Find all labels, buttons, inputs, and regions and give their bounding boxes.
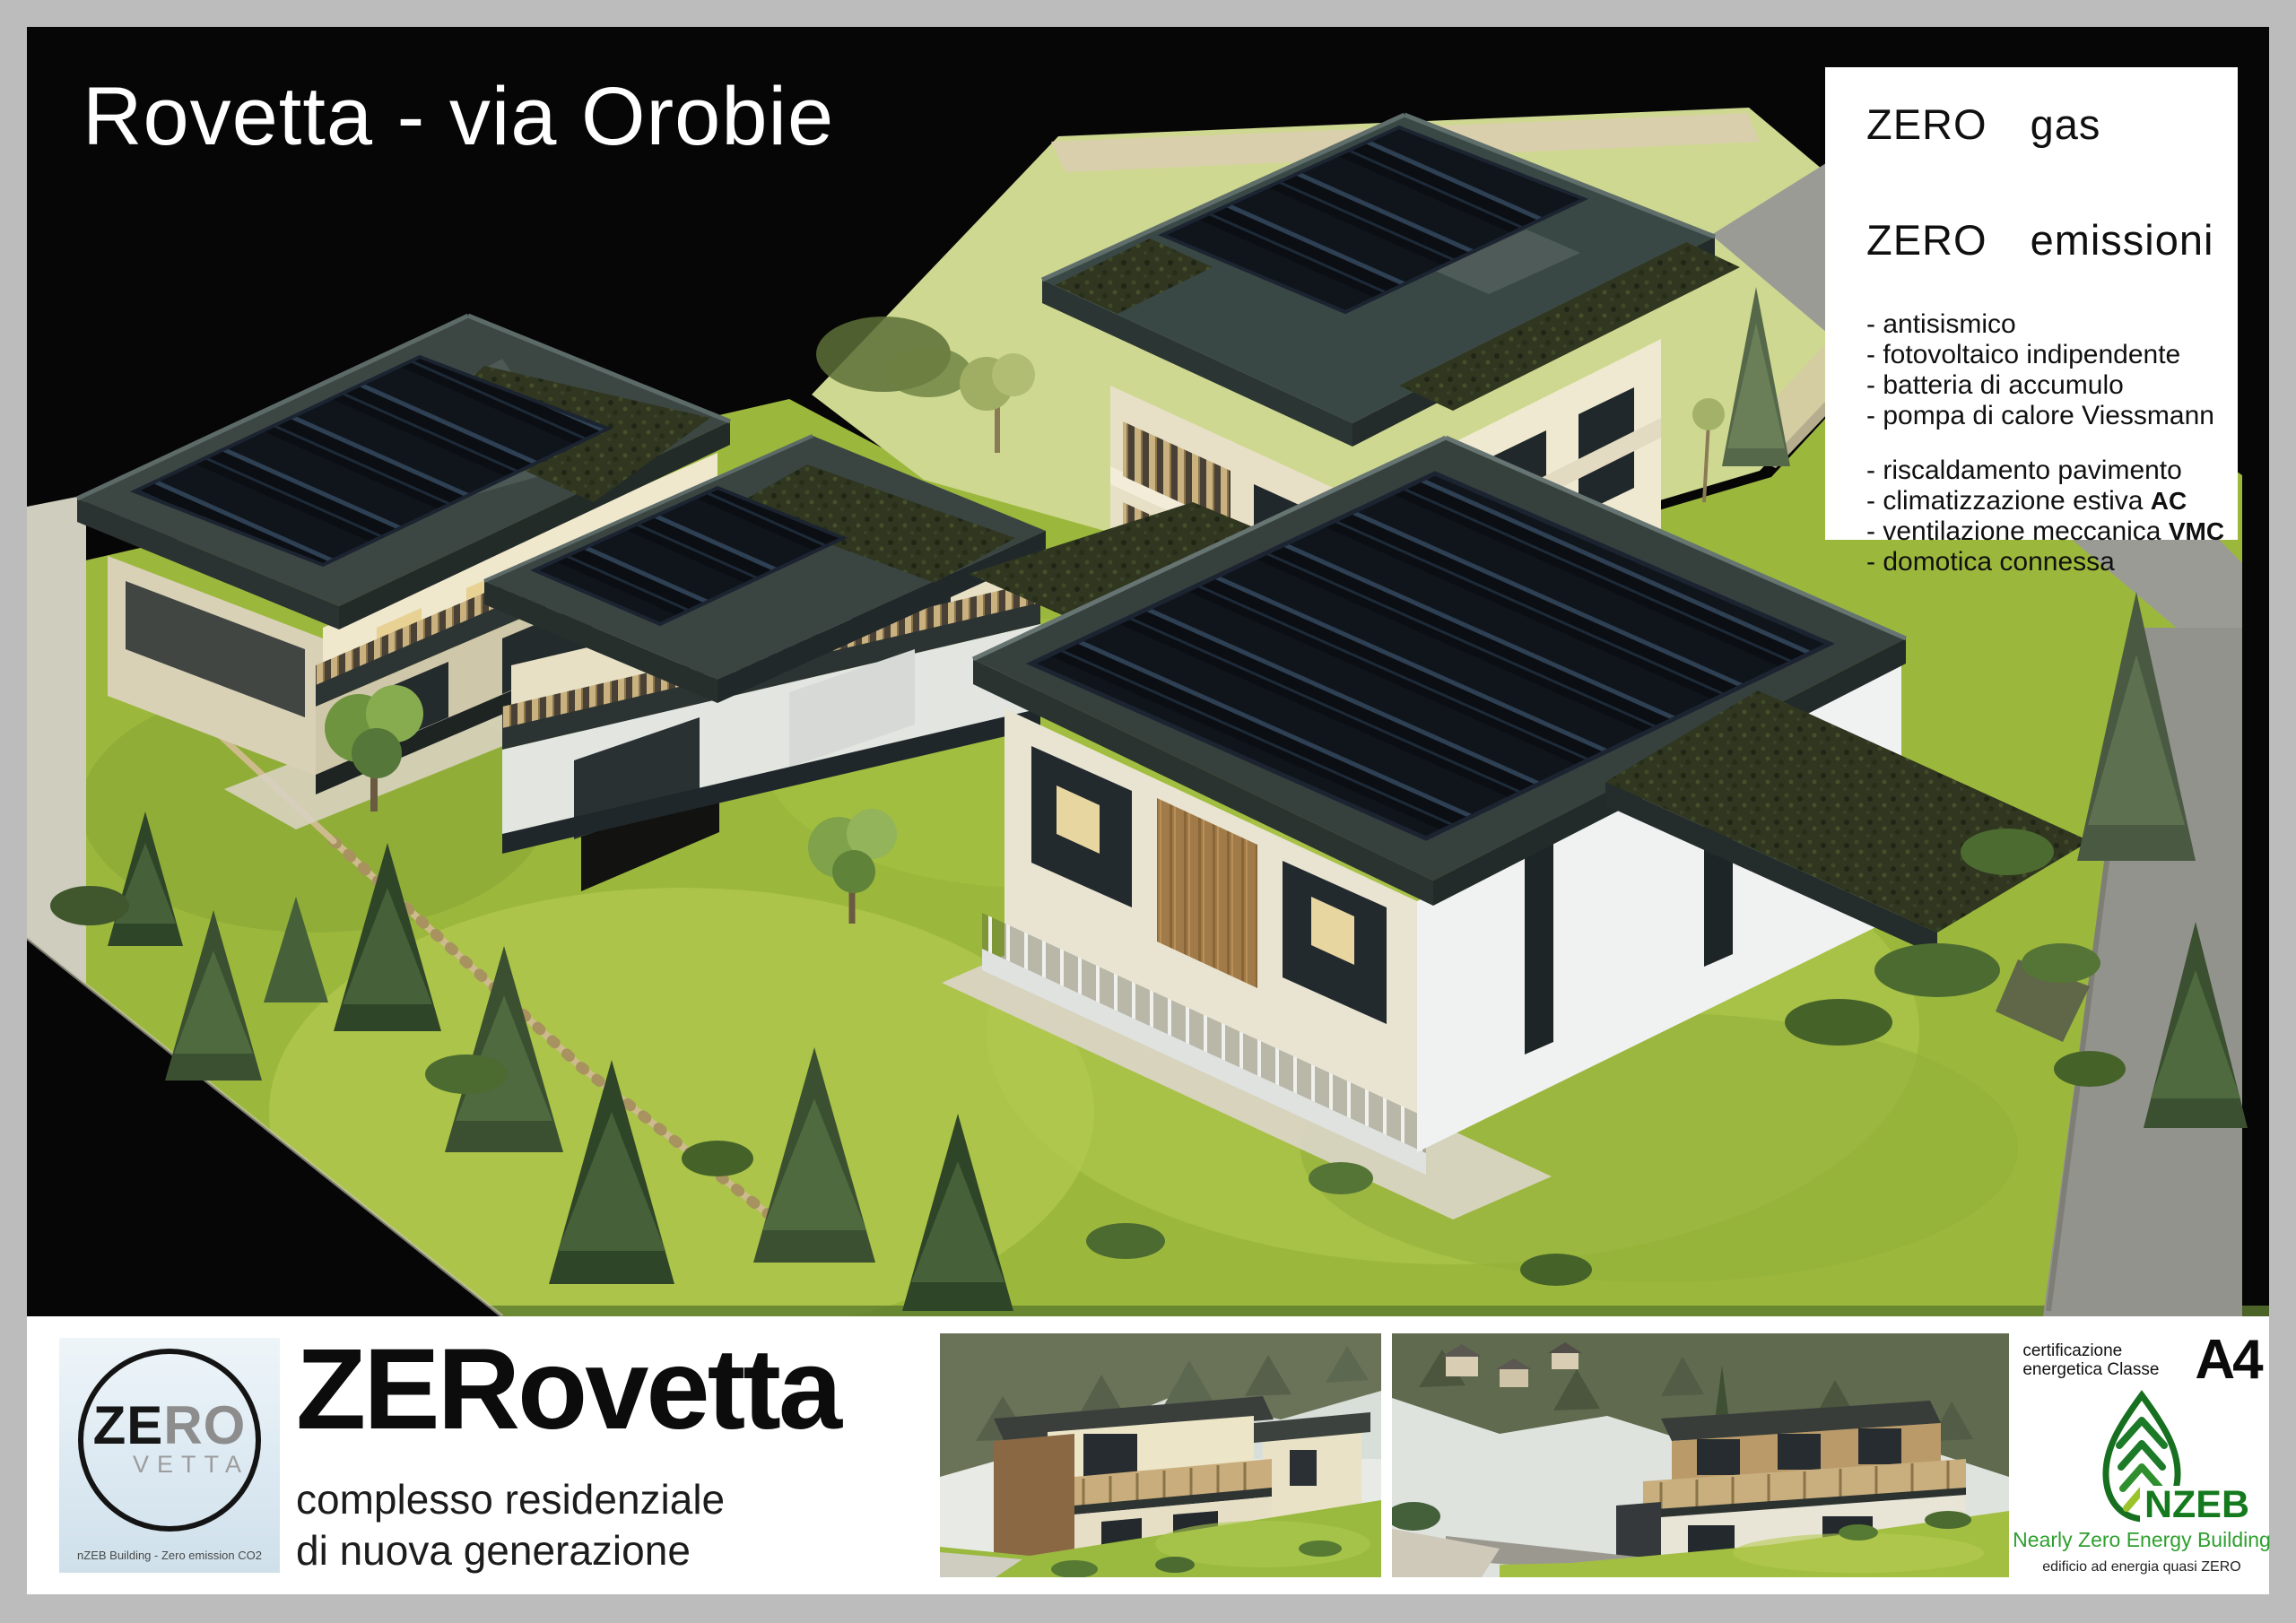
energy-class-row: certificazione energetica Classe A4 — [2011, 1332, 2273, 1388]
bush — [1961, 829, 2054, 875]
poster-page: Rovetta - via Orobie ZEROgas ZEROemissio… — [0, 0, 2296, 1623]
bush — [1309, 1162, 1373, 1194]
features-box: ZEROgas ZEROemissioni - antisismico - fo… — [1825, 67, 2238, 540]
energy-class-value: A4 — [2195, 1332, 2260, 1388]
nzeb-logo: NZEB — [2070, 1390, 2213, 1526]
feature-item: - ventilazione meccanica VMC — [1866, 516, 2229, 547]
brand-block: ZERovetta complesso residenziale di nuov… — [296, 1332, 839, 1576]
feature-item: - batteria di accumulo — [1866, 370, 2229, 401]
photo2-illustration — [1392, 1333, 2009, 1577]
bush — [682, 1141, 753, 1176]
nzeb-caption: edificio ad energia quasi ZERO — [2011, 1559, 2273, 1575]
bush — [1086, 1223, 1165, 1259]
feature-item: - riscaldamento pavimento — [1866, 456, 2229, 486]
bush — [425, 1055, 508, 1094]
photo1-illustration — [940, 1333, 1381, 1577]
page-title: Rovetta - via Orobie — [83, 70, 834, 164]
energy-class-label: certificazione energetica Classe — [2022, 1341, 2186, 1379]
zerovetta-logo: ZERO VETTA nZEB Building - Zero emission… — [59, 1338, 280, 1573]
features-list: - antisismico - fotovoltaico indipendent… — [1866, 309, 2229, 577]
bush — [1520, 1254, 1592, 1286]
nzeb-subtitle: Nearly Zero Energy Building — [2011, 1528, 2273, 1552]
logo-circle-icon: ZERO VETTA — [78, 1349, 261, 1532]
headline-zero-emissioni: ZEROemissioni — [1866, 215, 2229, 265]
headline-zero-gas: ZEROgas — [1866, 100, 2229, 149]
logo-wordmark: ZERO — [83, 1399, 256, 1453]
photo-building-exterior-2 — [1392, 1333, 2009, 1577]
photo-building-exterior-1 — [940, 1333, 1381, 1577]
feature-item: - climatizzazione estiva AC — [1866, 486, 2229, 516]
feature-item: - pompa di calore Viessmann — [1866, 401, 2229, 431]
brand-name: ZERovetta — [296, 1332, 839, 1447]
feature-item: - fotovoltaico indipendente — [1866, 340, 2229, 370]
feature-item: - domotica connessa — [1866, 547, 2229, 577]
nzeb-wordmark: NZEB — [2140, 1486, 2249, 1524]
bush — [50, 886, 129, 925]
bottom-bar: ZERO VETTA nZEB Building - Zero emission… — [27, 1316, 2269, 1594]
bush — [2054, 1051, 2126, 1087]
brand-tagline: complesso residenziale di nuova generazi… — [296, 1474, 839, 1576]
feature-item: - antisismico — [1866, 309, 2229, 340]
bush — [2022, 943, 2100, 983]
logo-caption: nZEB Building - Zero emission CO2 — [59, 1549, 280, 1562]
certification-block: certificazione energetica Classe A4 NZEB… — [2011, 1332, 2273, 1582]
